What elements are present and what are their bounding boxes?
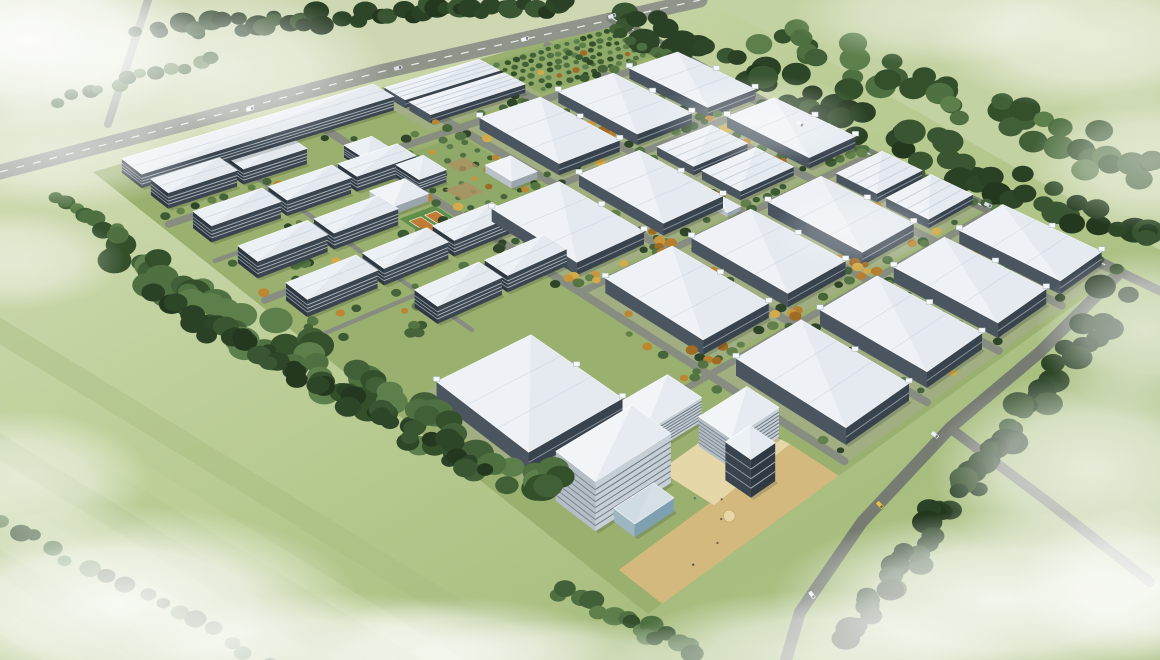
orchard-tree: [536, 63, 543, 68]
street-tree: [680, 375, 689, 382]
orchard-tree: [597, 45, 602, 49]
orchard-tree: [538, 70, 545, 75]
orchard-tree: [528, 59, 534, 63]
orchard-tree: [493, 62, 500, 67]
orchard-tree: [607, 57, 614, 62]
orchard-tree: [511, 65, 518, 70]
roof-stair-tower: [649, 88, 655, 93]
street-tree: [565, 50, 573, 56]
scene-svg: [0, 0, 1160, 660]
roof-stair-tower: [617, 135, 623, 140]
orchard-tree: [539, 78, 545, 83]
street-tree: [624, 311, 632, 318]
orchard-tree: [530, 53, 537, 58]
street-tree: [511, 238, 520, 245]
street-tree: [391, 289, 401, 297]
street-tree: [321, 135, 329, 141]
orchard-tree: [633, 56, 639, 61]
orchard-tree: [597, 59, 604, 64]
garden-tree: [712, 357, 722, 365]
orchard-tree: [541, 87, 546, 91]
street-tree: [401, 308, 408, 314]
orchard-tree: [472, 176, 478, 181]
street-tree: [837, 447, 845, 453]
roof-stair-tower: [906, 378, 912, 383]
street-tree: [711, 385, 722, 393]
orchard-tree: [460, 153, 466, 158]
orchard-tree: [614, 41, 619, 45]
roof-stair-tower: [1049, 223, 1055, 228]
street-tree: [642, 343, 652, 351]
forest-tree: [1012, 166, 1034, 183]
roof-stair-tower: [476, 113, 482, 118]
forest-tree: [259, 308, 292, 334]
forest-tree: [932, 130, 963, 154]
orchard-tree: [519, 76, 526, 81]
orchard-tree: [566, 77, 573, 83]
forest-tree: [477, 463, 493, 476]
orchard-tree: [572, 67, 579, 73]
forest-tree: [894, 120, 926, 145]
pedestrian: [721, 498, 723, 500]
street-tree: [411, 131, 420, 138]
plaza-fountain: [723, 510, 735, 522]
street-tree: [799, 166, 806, 171]
orchard-tree: [545, 83, 552, 89]
roof-stair-tower: [489, 204, 495, 209]
street-tree: [439, 137, 448, 144]
orchard-tree: [607, 37, 612, 41]
street-tree: [951, 220, 958, 225]
orchard-tree: [574, 39, 580, 44]
orchard-tree: [582, 64, 589, 69]
street-tree: [544, 171, 551, 177]
garden-tree: [686, 345, 698, 354]
street-tree: [350, 136, 357, 141]
street-tree: [586, 60, 593, 66]
roof-stair-tower: [1043, 284, 1049, 289]
roof-stair-tower: [979, 328, 985, 333]
orchard-tree: [522, 62, 529, 67]
garden-tree: [770, 310, 780, 318]
forest-tree: [950, 111, 969, 126]
orchard-tree: [640, 53, 646, 58]
orchard-tree: [604, 29, 610, 34]
roof-stair-tower: [626, 63, 632, 68]
street-tree: [336, 309, 345, 316]
orchard-tree: [615, 47, 621, 51]
street-tree: [412, 284, 419, 289]
street-tree: [609, 66, 620, 74]
orchard-tree: [625, 52, 630, 56]
forest-tree: [306, 376, 329, 394]
orchard-tree: [503, 68, 508, 72]
orchard-tree: [529, 82, 534, 86]
roof-stair-tower: [720, 191, 726, 196]
roof-stair-tower: [577, 114, 583, 119]
street-tree: [767, 321, 779, 330]
orchard-tree: [590, 55, 596, 59]
roof-stair-tower: [1098, 247, 1104, 252]
street-tree: [993, 338, 1003, 346]
forest-tree: [624, 36, 636, 45]
street-tree: [191, 202, 200, 209]
orchard-tree: [555, 59, 562, 65]
roof-stair-tower: [717, 270, 723, 275]
roof-stair-tower: [956, 225, 962, 230]
orchard-tree: [530, 67, 535, 71]
orchard-tree: [588, 48, 594, 53]
orchard-tree: [485, 184, 492, 190]
street-tree: [248, 185, 256, 191]
street-tree: [176, 208, 185, 215]
orchard-tree: [520, 54, 527, 59]
pedestrian: [716, 542, 718, 544]
forest-tree: [614, 28, 628, 38]
street-tree: [573, 279, 585, 288]
forest-tree: [626, 11, 647, 27]
forest-tree: [495, 476, 518, 494]
mist-cloud: [650, 75, 870, 165]
street-tree: [453, 203, 464, 211]
street-tree: [521, 187, 529, 193]
street-tree: [737, 342, 745, 348]
street-tree: [818, 293, 828, 301]
orchard-tree: [461, 140, 468, 145]
orchard-tree: [589, 41, 596, 46]
street-tree: [698, 360, 709, 368]
forest-tree: [746, 34, 773, 54]
forest-tree: [401, 431, 418, 444]
orchard-tree: [616, 61, 622, 66]
roof-stair-tower: [555, 87, 561, 92]
street-tree: [258, 288, 269, 297]
orchard-tree: [538, 50, 544, 54]
forest-tree: [286, 371, 308, 388]
street-tree: [228, 260, 237, 267]
garden-tree: [592, 277, 601, 284]
orchard-tree: [587, 34, 593, 38]
forest-tree: [260, 356, 278, 370]
street-tree: [658, 351, 669, 359]
forest-tree: [805, 49, 828, 67]
street-tree: [442, 124, 452, 132]
orchard-tree: [429, 149, 436, 155]
roof-stair-tower: [817, 305, 823, 310]
pedestrian: [694, 497, 696, 499]
forest-tree: [356, 3, 372, 15]
street-tree: [818, 436, 829, 444]
street-tree: [753, 197, 760, 203]
street-tree: [770, 188, 780, 196]
forest-tree: [728, 50, 747, 65]
roof-stair-tower: [433, 377, 439, 382]
street-tree: [575, 54, 583, 60]
forest-tree: [874, 69, 901, 90]
orchard-tree: [513, 57, 520, 63]
orchard-tree: [545, 75, 551, 80]
street-tree: [160, 212, 170, 220]
street-tree: [626, 331, 633, 337]
forest-tree: [533, 474, 563, 497]
roof-stair-tower: [926, 300, 932, 305]
street-tree: [455, 132, 467, 141]
orchard-tree: [527, 73, 534, 79]
orchard-tree: [574, 46, 580, 50]
garden-tree: [856, 272, 866, 279]
orchard-tree: [547, 67, 554, 72]
orchard-tree: [539, 56, 545, 61]
orchard-tree: [547, 53, 554, 59]
orchard-tree: [566, 70, 571, 74]
street-tree: [351, 305, 361, 313]
roof-stair-tower: [733, 353, 739, 358]
garden-tree: [404, 328, 417, 338]
garden-tree: [563, 274, 573, 282]
aerial-rendering-canvas: [0, 0, 1160, 660]
orchard-tree: [579, 43, 586, 49]
orchard-tree: [557, 73, 563, 77]
roof-stair-tower: [574, 362, 580, 367]
garden-tree: [431, 199, 441, 206]
orchard-tree: [580, 36, 587, 41]
roof-stair-tower: [576, 169, 582, 174]
orchard-tree: [545, 47, 551, 51]
orchard-tree: [447, 144, 454, 149]
orchard-tree: [616, 54, 623, 59]
street-tree: [619, 260, 628, 267]
roof-stair-tower: [602, 273, 608, 278]
orchard-tree: [511, 71, 517, 76]
forest-tree: [1136, 230, 1157, 246]
orchard-tree: [554, 64, 561, 70]
orchard-tree: [597, 52, 603, 56]
orchard-tree: [475, 148, 481, 152]
forest-tree: [1013, 185, 1037, 203]
orchard-tree: [554, 44, 561, 49]
orchard-tree: [563, 56, 569, 60]
street-tree: [550, 280, 560, 288]
street-tree: [530, 182, 540, 190]
street-tree: [401, 135, 412, 143]
mist-cloud: [770, 190, 950, 270]
roof-stair-tower: [641, 226, 647, 231]
street-tree: [429, 188, 436, 194]
street-tree: [579, 74, 589, 82]
orchard-tree: [573, 60, 579, 64]
roof-stair-tower: [598, 201, 604, 206]
orchard-tree: [505, 60, 511, 65]
pedestrian: [692, 564, 694, 566]
garden-tree: [789, 312, 801, 321]
orchard-tree: [596, 38, 603, 44]
roof-stair-tower: [852, 347, 858, 352]
street-tree: [492, 155, 499, 161]
forest-tree: [940, 96, 961, 112]
forest-tree: [335, 397, 361, 417]
roof-stair-tower: [765, 197, 771, 202]
street-tree: [262, 178, 271, 185]
orchard-tree: [547, 62, 553, 67]
orchard-tree: [556, 81, 563, 86]
forest-tree: [998, 117, 1023, 136]
street-tree: [338, 333, 349, 341]
roof-stair-tower: [678, 168, 684, 173]
street-tree: [917, 388, 925, 394]
orchard-tree: [500, 194, 507, 199]
roof-stair-tower: [992, 258, 998, 263]
forest-tree: [381, 415, 399, 429]
orchard-tree: [555, 52, 562, 57]
roof-stair-tower: [766, 298, 772, 303]
roof-stair-tower: [688, 233, 694, 238]
orchard-tree: [520, 69, 526, 73]
forest-tree: [453, 459, 477, 478]
street-tree: [493, 244, 505, 253]
orchard-tree: [564, 63, 570, 68]
orchard-tree: [564, 42, 569, 46]
street-tree: [856, 149, 867, 158]
street-tree: [624, 141, 633, 148]
forest-tree: [636, 43, 647, 51]
roof-stair-tower: [619, 393, 625, 398]
street-tree: [598, 65, 608, 73]
street-tree: [689, 373, 700, 381]
street-tree: [432, 119, 439, 124]
roof-stair-tower: [713, 66, 719, 71]
orchard-tree: [595, 32, 602, 37]
orchard-tree: [607, 50, 612, 54]
forest-tree: [694, 38, 715, 54]
orchard-tree: [606, 42, 612, 47]
pedestrian: [720, 518, 722, 520]
